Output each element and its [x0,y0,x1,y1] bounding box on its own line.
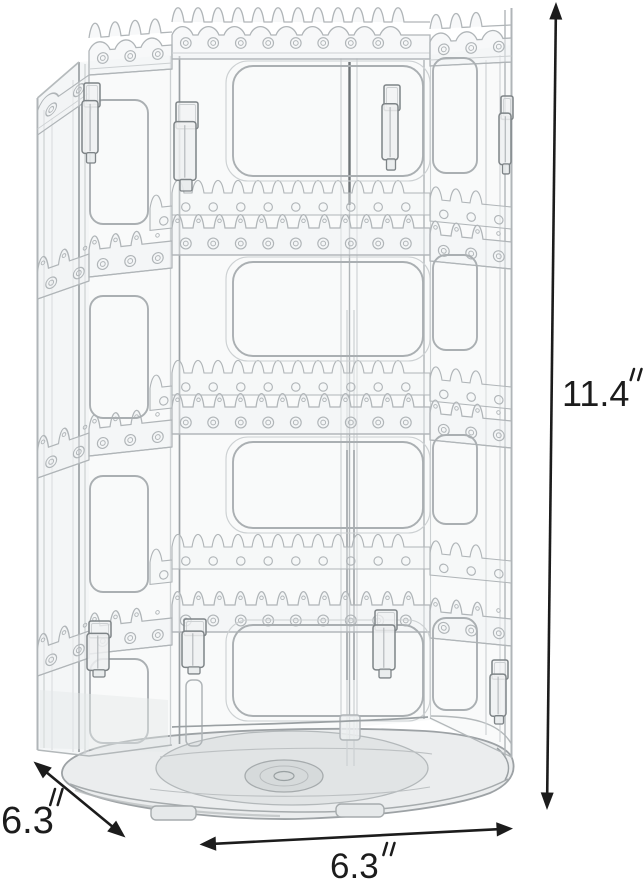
svg-text:6.3: 6.3 [330,847,379,879]
svg-text:11.4: 11.4 [562,373,629,414]
svg-text:6.3: 6.3 [1,800,54,842]
